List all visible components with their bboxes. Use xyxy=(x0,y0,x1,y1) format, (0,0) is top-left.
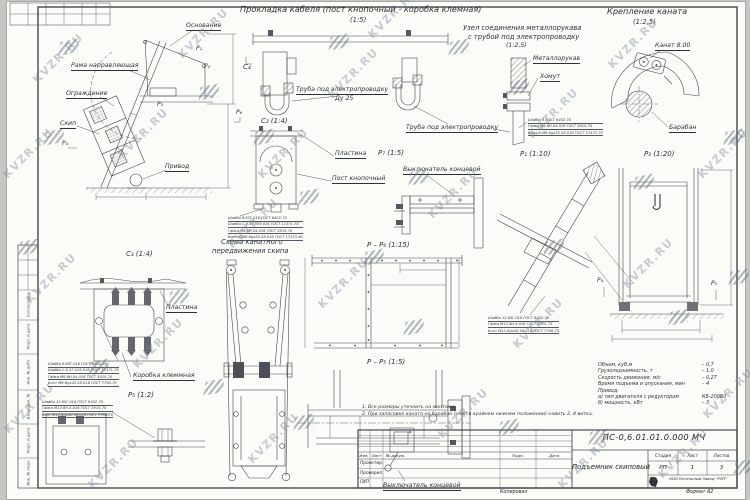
title-sleeve-node-2: с трубой под электропроводку xyxy=(468,34,579,41)
spec-line: Гайка М12-6Н.5.016 ГОСТ 5915-70 xyxy=(488,322,559,328)
view-label-c2: C₂ (1:4) xyxy=(261,118,288,126)
line-art xyxy=(0,0,750,500)
section-mark-p6: P₆ xyxy=(236,110,242,117)
callout-skip: Скип xyxy=(60,121,76,129)
sheet-value: 1 xyxy=(678,465,707,471)
doc-number: ПС-0,6.01.01.0.000 МЧ xyxy=(574,432,734,442)
view-bottom-beam xyxy=(298,370,470,481)
callout-kanat: Канат 8.00 xyxy=(655,43,690,51)
callout-metallorukav: Металлорукав xyxy=(533,56,580,64)
spec-line: Гайка М6-6Н.04.016 ГОСТ 5915-70 xyxy=(528,124,603,130)
spec-line: Гайка М12-6Н.5.016 ГОСТ 5915-70 xyxy=(42,406,113,412)
tech-spec-row: б) мощность, кВт– 3 xyxy=(598,400,740,406)
view-cable-routing xyxy=(246,30,448,124)
tech-specs: Объем, куб.м– 0,7Грузоподъемность, т– 1,… xyxy=(598,362,740,407)
notes: 1. Все размеры уточнить на монтаже.2. Пр… xyxy=(362,404,593,419)
strip-inv-dubl: Инв. № дубл. xyxy=(26,352,31,392)
callout-vykl-bottom: Выключатель концевой xyxy=(383,483,461,491)
footer-copy: Копировал xyxy=(500,490,527,495)
company-name: ООО Котельный Завод "РЭП" xyxy=(660,477,736,482)
stage-label: Стадия xyxy=(648,453,678,458)
view-label-p1: P₁ (1:10) xyxy=(520,151,550,159)
view-switch-box xyxy=(42,414,110,484)
section-mark-p5b: P₅ xyxy=(711,281,717,288)
title-cable-routing-scale: (1:5) xyxy=(350,17,366,24)
spec-line: Болт М12-6gх40.58.016 ГОСТ 7798-70 xyxy=(42,413,113,419)
col-podp: Подп. xyxy=(500,453,536,458)
view-p3 xyxy=(604,168,733,342)
callout-rama: Рама направляющая xyxy=(71,63,138,71)
callout-plastina-post: Пластина xyxy=(335,151,366,159)
spec-line: Шайба С.6.37.019.016 ГОСТ 11371-78 xyxy=(228,222,303,228)
sheet-label: Лист xyxy=(678,453,707,458)
spec-table-korobka: Шайба 8.65Г.016 ГОСТ 6402-70Шайба С.8.37… xyxy=(48,362,119,387)
spec-line: Шайба 6 ГОСТ 6402-70 xyxy=(528,118,603,124)
section-mark-p2: P₂ xyxy=(204,64,210,71)
callout-osnovanie: Основание xyxy=(186,23,221,31)
col-data: Дата xyxy=(536,453,572,458)
spec-line: Винт В.М6-6gх20.58.016 ГОСТ 17473-80 xyxy=(228,235,303,241)
title-sleeve-node-1: Узел соединения металлорукава xyxy=(463,25,581,32)
section-mark-p3: P₃ xyxy=(157,102,163,109)
section-mark-p4b: P₄ xyxy=(597,278,603,285)
note-line: 2. При запасовке каната на барабан (скип… xyxy=(362,411,593,418)
view-push-button-post xyxy=(240,126,334,216)
row-proektir: Проектир. xyxy=(360,461,383,466)
row-gip: ГИП xyxy=(360,480,369,485)
spec-line: Гайка М6-6Н.04.016 ГОСТ 5915-70 xyxy=(228,229,303,235)
view-rope-scheme xyxy=(224,260,292,481)
view-label-c4: C₄ xyxy=(243,64,251,72)
spec-line: Шайба С.8.37.019.016 ГОСТ 11371-78 xyxy=(48,368,119,374)
callout-du25: Ду 25 xyxy=(335,96,353,103)
title-sleeve-node-scale: (1:2,5) xyxy=(506,43,527,50)
title-rope-fastening-scale: (1:2,5) xyxy=(633,19,656,26)
section-mark-p1: P₁ xyxy=(196,46,202,53)
view-label-c3: C₃ (1:4) xyxy=(126,251,153,259)
view-main-assembly xyxy=(68,30,240,200)
callout-plastina-box: Пластина xyxy=(166,305,197,313)
footer-format: Формат А2 xyxy=(686,490,713,495)
sheets-label: Листов xyxy=(706,453,737,458)
title-rope-scheme-2: передвижения скипа xyxy=(212,248,289,255)
stage-value: РП xyxy=(648,465,678,471)
spec-line: Шайба 6.65Г.016 ГОСТ 6402-70 xyxy=(228,216,303,222)
view-label-pp5: P – P₅ (1:5) xyxy=(367,359,405,367)
drawing-sheet-page: { "watermark": { "text": "KVZR.RU" }, "t… xyxy=(0,0,750,500)
strip-podp-data-1: Подп. и дата xyxy=(26,317,31,357)
spec-line: Шайба 12.65Г.016 ГОСТ 6402-70 xyxy=(488,316,559,322)
callout-post-knopochny: Пост кнопочный xyxy=(332,176,385,184)
row-proveril: Проверил xyxy=(360,471,382,476)
spec-table-post: Шайба 6.65Г.016 ГОСТ 6402-70Шайба С.6.37… xyxy=(228,216,303,241)
view-label-p3: P₃ (1:20) xyxy=(644,151,674,159)
callout-korobka: Коробка клеммная xyxy=(133,373,195,381)
section-mark-p4: P₄ xyxy=(62,141,68,148)
spec-line: Шайба 12.65Г.016 ГОСТ 6402-70 xyxy=(42,400,113,406)
view-label-p7: P₇ (1:5) xyxy=(378,150,404,158)
callout-khomut: Хомут xyxy=(540,74,560,82)
note-line: 1. Все размеры уточнить на монтаже. xyxy=(362,404,593,411)
spec-line: Гайка М8-6Н.04.016 ГОСТ 5915-70 xyxy=(48,375,119,381)
spec-table-sleeve: Шайба 6 ГОСТ 6402-70Гайка М6-6Н.04.016 Г… xyxy=(528,118,603,137)
callout-vykl-top: Выключатель концевой xyxy=(403,167,481,175)
title-cable-routing: Прокладка кабеля (пост кнопочный - короб… xyxy=(240,5,482,14)
spec-line: Шайба 8.65Г.016 ГОСТ 6402-70 xyxy=(48,362,119,368)
col-dokum: № докум. xyxy=(386,453,405,458)
view-label-pp6: P – P₆ (1:15) xyxy=(367,242,410,250)
sheets-value: 3 xyxy=(706,465,737,471)
spec-table-m12-mid: Шайба 12.65Г.016 ГОСТ 6402-70Гайка М12-6… xyxy=(488,316,559,335)
strip-inv-podl: Инв. № подл. xyxy=(26,453,31,493)
spec-line: Болт М8-6gх45.58.016 ГОСТ 7798-70 xyxy=(48,381,119,387)
spec-line: Винт В.М6-6gх25.58.016 ГОСТ 17475-70 xyxy=(528,131,603,137)
view-p7 xyxy=(394,176,483,248)
callout-truba-right: Труба под электропроводку xyxy=(406,125,498,133)
spec-table-m12-left: Шайба 12.65Г.016 ГОСТ 6402-70Гайка М12-6… xyxy=(42,400,113,419)
drawing-title: Подъемник скиповый xyxy=(572,463,648,471)
view-label-p5: P₅ (1:2) xyxy=(128,392,154,400)
spec-line: Болт М12-6gх40.58.016 ГОСТ 7798-70 xyxy=(488,329,559,335)
col-list: Лист xyxy=(370,453,383,458)
view-bolt-detail xyxy=(112,412,205,462)
callout-baraban: Барабан xyxy=(669,125,696,133)
callout-ograzhdenie: Ограждение xyxy=(66,91,107,99)
view-p1 xyxy=(497,162,634,315)
view-rope-fastening xyxy=(612,50,699,127)
view-pp6 xyxy=(305,255,462,348)
callout-privod: Привод xyxy=(165,164,189,172)
col-izm: Изм. xyxy=(358,453,370,458)
title-rope-fastening: Крепление каната xyxy=(607,7,687,16)
